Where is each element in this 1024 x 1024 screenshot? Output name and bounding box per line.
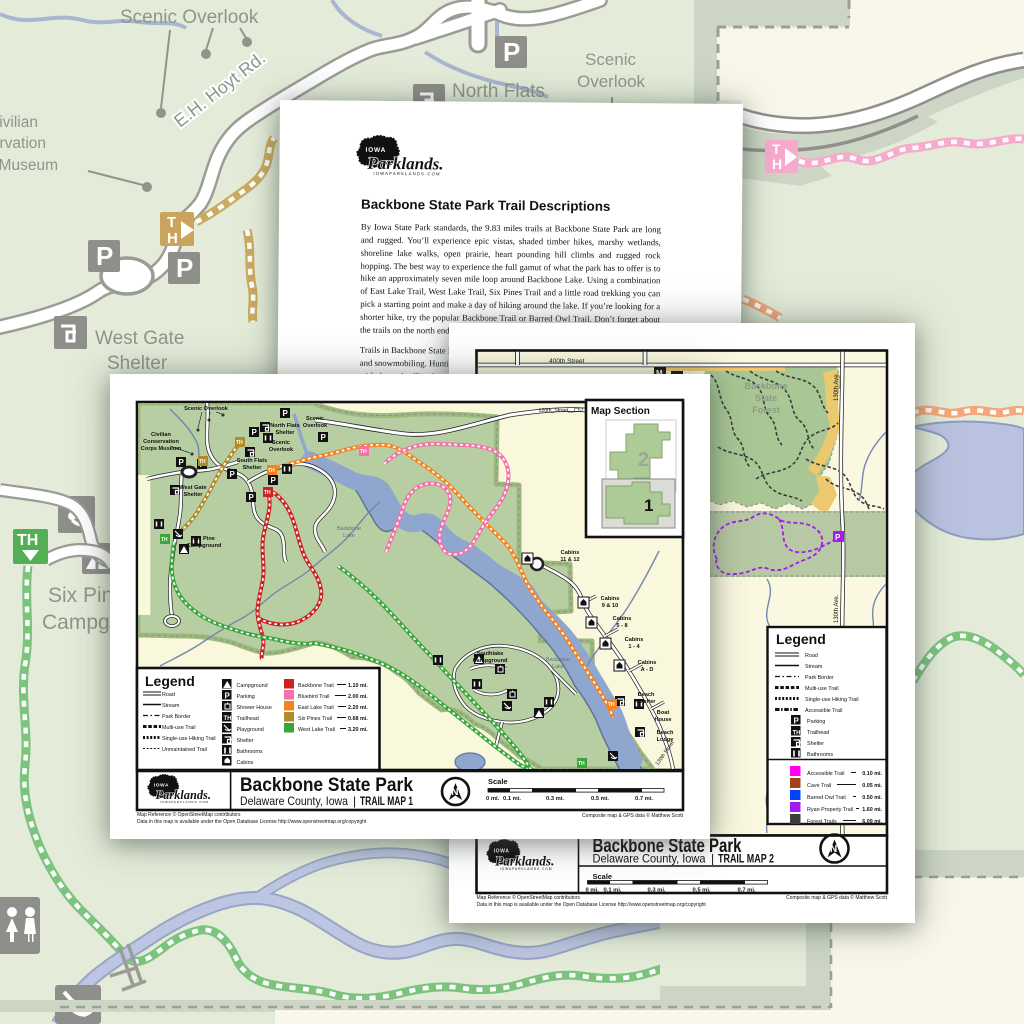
svg-text:Backbone: Backbone [546, 657, 570, 663]
svg-text:0 mi.: 0 mi. [486, 796, 500, 802]
svg-text:Shelter: Shelter [276, 430, 296, 436]
svg-text:1.10 mi.: 1.10 mi. [348, 683, 368, 689]
svg-text:130th Ave.: 130th Ave. [834, 372, 840, 401]
svg-text:1 - 4: 1 - 4 [628, 644, 640, 650]
svg-text:0.7 mi.: 0.7 mi. [635, 796, 653, 802]
svg-text:0.7 mi.: 0.7 mi. [738, 887, 756, 893]
svg-text:Bathrooms: Bathrooms [237, 749, 263, 755]
svg-text:|: | [711, 852, 714, 866]
svg-text:T: T [167, 214, 176, 231]
svg-text:N: N [830, 844, 837, 855]
svg-text:T: T [772, 141, 781, 157]
svg-text:Scenic: Scenic [306, 416, 324, 422]
svg-text:Conservation: Conservation [143, 439, 179, 445]
svg-text:Forest: Forest [752, 405, 780, 415]
svg-text:TH: TH [17, 532, 38, 549]
svg-text:Cabins: Cabins [601, 596, 620, 602]
svg-text:West Gate: West Gate [95, 328, 184, 349]
svg-text:130th Ave.: 130th Ave. [834, 594, 840, 623]
svg-text:Scale: Scale [593, 872, 613, 881]
svg-text:West Lake Trail: West Lake Trail [298, 727, 335, 733]
svg-text:0.68 mi.: 0.68 mi. [348, 716, 368, 722]
svg-text:0.10 mi.: 0.10 mi. [862, 771, 882, 777]
svg-text:Bathrooms: Bathrooms [807, 752, 833, 758]
svg-text:P: P [176, 253, 193, 283]
svg-text:1.60 mi.: 1.60 mi. [862, 807, 882, 813]
svg-text:Shower House: Shower House [237, 705, 272, 711]
svg-text:TH: TH [578, 761, 585, 767]
svg-text:Composite map & GPS data © Mat: Composite map & GPS data © Matthew Scott [582, 812, 684, 819]
svg-text:Ryan Property Trail: Ryan Property Trail [807, 807, 853, 813]
svg-text:Lake: Lake [552, 664, 564, 670]
svg-text:Beach: Beach [657, 730, 674, 736]
svg-text:H: H [772, 156, 782, 172]
svg-text:Barred Owl Trail: Barred Owl Trail [807, 795, 846, 801]
svg-text:P: P [271, 476, 277, 485]
svg-text:TH: TH [608, 702, 615, 708]
svg-text:Civilian: Civilian [0, 114, 38, 131]
svg-text:2.00 mi.: 2.00 mi. [348, 694, 368, 700]
svg-text:Legend: Legend [776, 631, 826, 647]
svg-text:TH: TH [360, 449, 367, 455]
svg-text:Scale: Scale [488, 777, 508, 786]
svg-text:Cabins: Cabins [613, 616, 632, 622]
svg-text:Composite map & GPS data © Mat: Composite map & GPS data © Matthew Scott [786, 894, 888, 901]
svg-text:Cave Trail: Cave Trail [807, 783, 831, 789]
svg-text:Civilian: Civilian [151, 432, 171, 438]
svg-text:Road: Road [805, 653, 818, 659]
svg-text:0.3 mi.: 0.3 mi. [546, 796, 564, 802]
svg-text:1: 1 [644, 496, 653, 515]
svg-text:Map Reference © OpenStreetMap: Map Reference © OpenStreetMap contributo… [137, 811, 241, 818]
svg-text:P: P [503, 37, 520, 67]
svg-text:Shelter: Shelter [107, 353, 168, 374]
svg-text:Beach: Beach [638, 692, 655, 698]
svg-text:P: P [225, 692, 231, 701]
svg-text:Trailhead: Trailhead [237, 716, 259, 722]
svg-text:IOWAPARKLANDS.COM: IOWAPARKLANDS.COM [500, 867, 553, 871]
svg-text:Corps Museum: Corps Museum [141, 446, 181, 452]
svg-text:Data in this map is available: Data in this map is available under the … [137, 819, 367, 825]
svg-text:TH: TH [268, 468, 275, 474]
svg-text:P: P [835, 533, 841, 542]
svg-text:Cabins: Cabins [237, 760, 254, 766]
svg-text:Shelter: Shelter [637, 699, 657, 705]
svg-text:Stream: Stream [162, 703, 180, 709]
svg-text:|: | [353, 794, 356, 808]
svg-text:P: P [96, 241, 113, 271]
svg-text:Shelter: Shelter [807, 741, 824, 747]
svg-text:2.20 mi.: 2.20 mi. [348, 705, 368, 711]
svg-text:Cabins: Cabins [561, 550, 580, 556]
svg-text:Shelter: Shelter [237, 738, 254, 744]
svg-text:6.09 mi.: 6.09 mi. [862, 819, 882, 825]
svg-text:Scenic: Scenic [585, 50, 637, 69]
svg-text:North Flats: North Flats [270, 423, 300, 429]
svg-text:Delaware County, Iowa: Delaware County, Iowa [240, 794, 348, 808]
svg-text:P: P [321, 433, 327, 442]
svg-text:Campground: Campground [473, 658, 508, 664]
svg-text:Backbone: Backbone [744, 381, 787, 391]
svg-text:Scenic: Scenic [272, 440, 290, 446]
svg-text:P: P [252, 428, 258, 437]
svg-text:TRAIL MAP 1: TRAIL MAP 1 [360, 794, 413, 808]
svg-text:East Lake Trail: East Lake Trail [298, 705, 334, 711]
svg-text:West Gate: West Gate [179, 485, 206, 491]
svg-text:Parklands.: Parklands. [495, 854, 554, 869]
svg-text:Accessible Trail: Accessible Trail [805, 708, 842, 714]
svg-text:H: H [167, 230, 178, 247]
svg-text:South Flats: South Flats [237, 458, 267, 464]
svg-text:TH: TH [793, 731, 801, 737]
svg-text:House: House [654, 717, 671, 723]
svg-text:Southlake: Southlake [477, 651, 504, 657]
svg-text:State: State [755, 393, 777, 403]
svg-text:Cabins: Cabins [638, 660, 657, 666]
svg-text:Overlook: Overlook [303, 423, 328, 429]
svg-text:Boat: Boat [657, 710, 670, 716]
svg-text:Multi-use Trail: Multi-use Trail [805, 686, 839, 692]
svg-text:Data in this map is available: Data in this map is available under the … [477, 902, 707, 908]
svg-text:Scenic Overlook: Scenic Overlook [120, 7, 259, 28]
svg-text:TH: TH [199, 459, 206, 465]
svg-text:Shelter: Shelter [184, 492, 204, 498]
svg-text:400th Street: 400th Street [549, 358, 585, 365]
svg-text:9 & 10: 9 & 10 [602, 603, 618, 609]
svg-text:0.50 mi.: 0.50 mi. [862, 795, 882, 801]
svg-text:0.05 mi.: 0.05 mi. [862, 783, 882, 789]
svg-text:Six Pine: Six Pine [193, 536, 215, 542]
svg-text:120th_Street__C57: 120th_Street__C57 [539, 408, 584, 414]
svg-text:5 - 8: 5 - 8 [616, 623, 627, 629]
svg-text:Unmaintained Trail: Unmaintained Trail [162, 747, 207, 753]
svg-text:Stream: Stream [805, 664, 823, 670]
svg-text:0.1 mi.: 0.1 mi. [503, 796, 521, 802]
svg-text:N: N [451, 787, 458, 798]
svg-text:TH: TH [161, 537, 168, 543]
svg-text:Backbone State Park: Backbone State Park [240, 775, 413, 796]
svg-text:11 & 12: 11 & 12 [560, 557, 579, 563]
svg-text:3.20 mi.: 3.20 mi. [348, 727, 368, 733]
svg-text:Shelter: Shelter [243, 465, 263, 471]
svg-text:Legend: Legend [145, 673, 195, 689]
svg-text:Corps Museum: Corps Museum [0, 157, 58, 174]
svg-text:Forest Trails: Forest Trails [807, 819, 837, 825]
svg-text:Campground: Campground [187, 543, 222, 549]
svg-text:Campground: Campground [237, 683, 268, 689]
svg-text:0.5 mi.: 0.5 mi. [693, 887, 711, 893]
svg-text:P: P [794, 717, 800, 726]
svg-text:TRAIL MAP 2: TRAIL MAP 2 [718, 852, 774, 866]
svg-text:Accessible Trail: Accessible Trail [807, 771, 844, 777]
svg-text:Park Border: Park Border [162, 714, 191, 720]
svg-text:IOWAPARKLANDS.COM: IOWAPARKLANDS.COM [373, 171, 440, 177]
svg-text:Six Pines Trail: Six Pines Trail [298, 716, 332, 722]
svg-text:Cabins: Cabins [625, 637, 644, 643]
svg-text:P: P [283, 409, 289, 418]
svg-text:Backbone: Backbone [337, 526, 361, 532]
svg-text:Backbone Trail: Backbone Trail [298, 683, 334, 689]
svg-text:P: P [179, 458, 185, 467]
svg-text:0.3 mi.: 0.3 mi. [648, 887, 666, 893]
svg-text:Multi-use Trail: Multi-use Trail [162, 725, 196, 731]
svg-text:Playground: Playground [237, 727, 264, 733]
svg-text:Road: Road [162, 692, 175, 698]
svg-text:0.1 mi.: 0.1 mi. [604, 887, 622, 893]
svg-text:Single-use Hiking Trail: Single-use Hiking Trail [162, 736, 216, 742]
svg-text:TH: TH [236, 440, 243, 446]
svg-text:Map Section: Map Section [591, 406, 650, 417]
svg-text:TH: TH [224, 716, 232, 722]
svg-text:Bluebird Trail: Bluebird Trail [298, 694, 329, 700]
svg-text:IOWAPARKLANDS.COM: IOWAPARKLANDS.COM [160, 800, 209, 804]
svg-text:TH: TH [264, 490, 271, 496]
svg-text:Conservation: Conservation [0, 135, 46, 152]
svg-text:Parking: Parking [807, 719, 825, 725]
svg-text:2: 2 [638, 449, 649, 471]
svg-text:Lake: Lake [343, 533, 355, 539]
svg-text:Delaware County, Iowa: Delaware County, Iowa [593, 852, 706, 866]
svg-text:Overlook: Overlook [269, 447, 294, 453]
svg-text:A - D: A - D [641, 667, 654, 673]
svg-text:Parking: Parking [237, 694, 255, 700]
svg-text:North Flats: North Flats [452, 81, 545, 102]
svg-text:Trailhead: Trailhead [807, 730, 829, 736]
svg-text:Map Reference © OpenStreetMap: Map Reference © OpenStreetMap contributo… [477, 894, 581, 901]
svg-text:0 mi.: 0 mi. [586, 887, 600, 893]
svg-text:Park Border: Park Border [805, 675, 834, 681]
svg-text:P: P [249, 493, 255, 502]
svg-text:Scenic Overlook: Scenic Overlook [184, 406, 229, 412]
svg-text:P: P [230, 470, 236, 479]
svg-text:Overlook: Overlook [577, 72, 646, 91]
svg-text:0.5 mi.: 0.5 mi. [591, 796, 609, 802]
svg-text:Single-use Hiking Trail: Single-use Hiking Trail [805, 697, 859, 703]
